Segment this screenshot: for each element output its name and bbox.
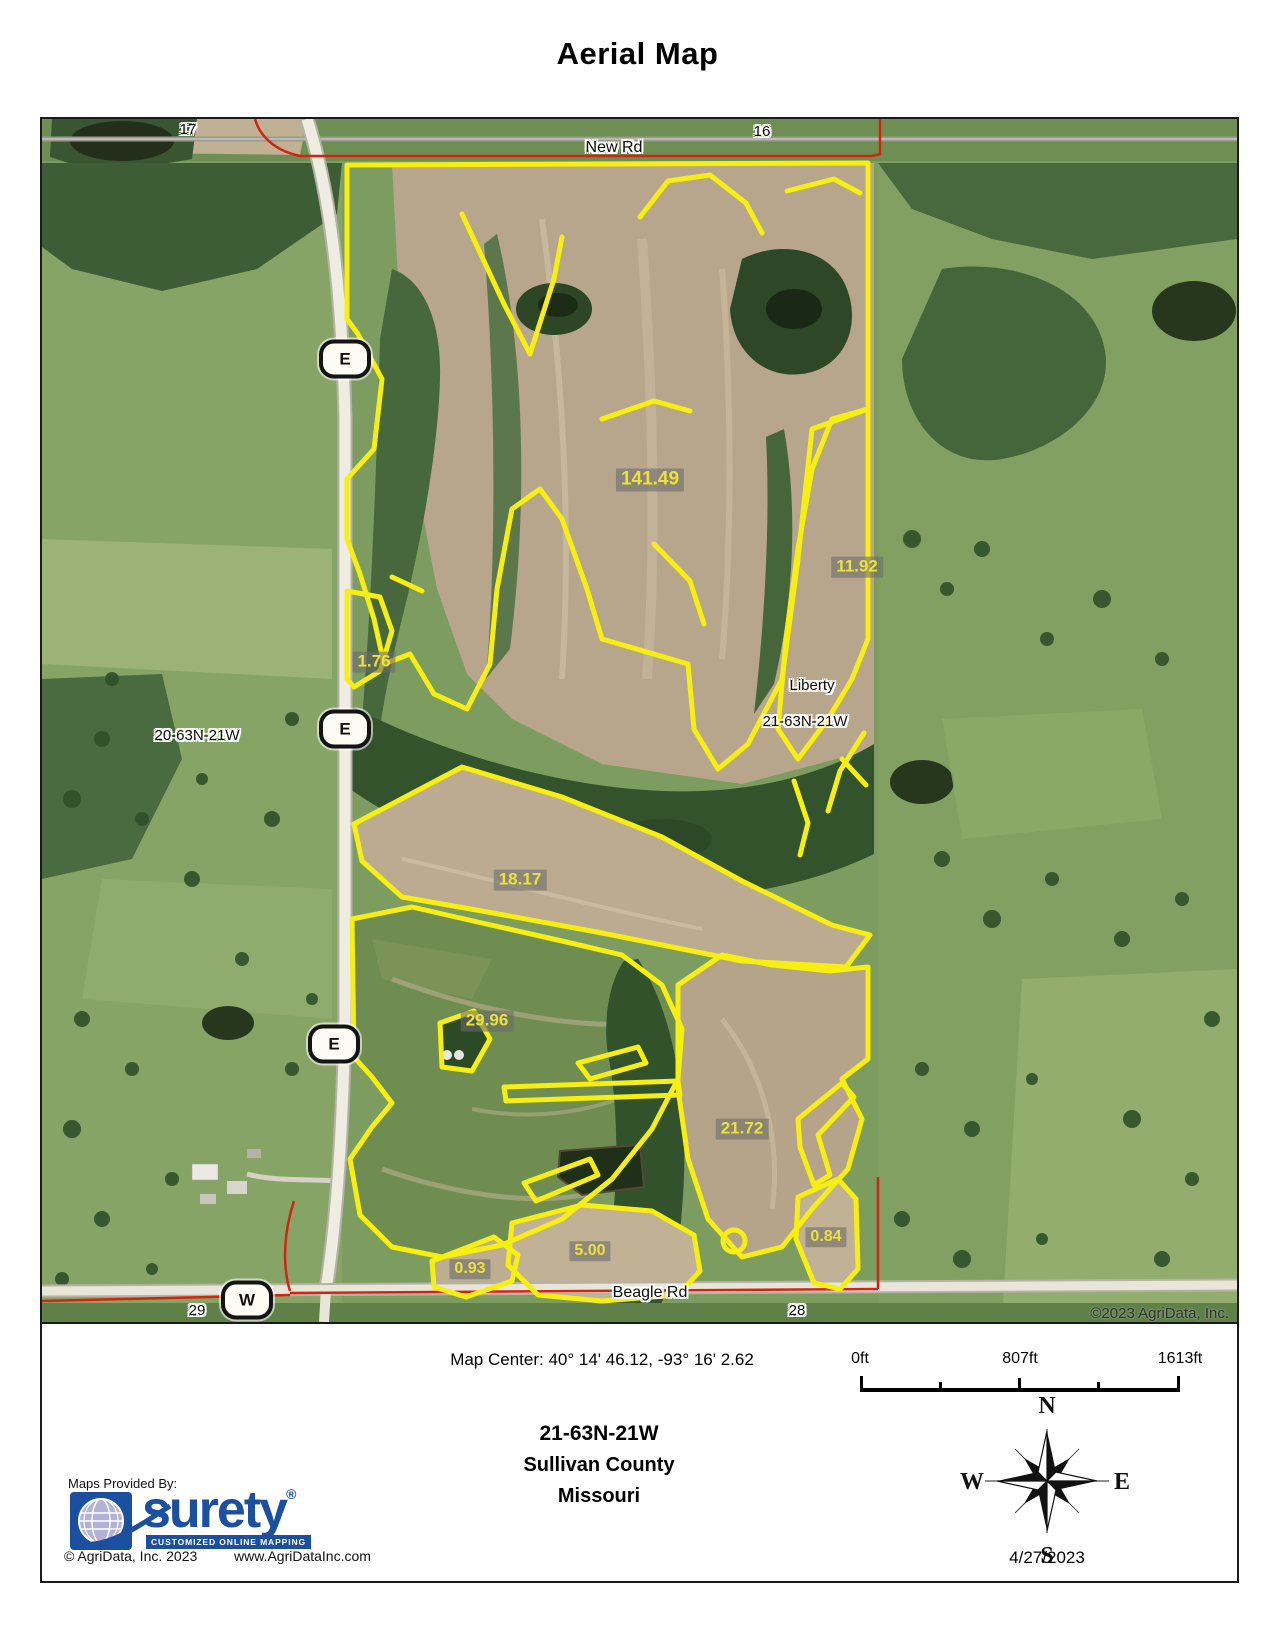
- acreage-label-5-00: 5.00: [569, 1241, 610, 1261]
- compass-rose: N S E W: [957, 1385, 1137, 1565]
- aerial-map: 17 16 New Rd 20-63N-21W Liberty 21-63N-2…: [42, 119, 1237, 1324]
- road-label-new-rd: New Rd: [586, 139, 643, 157]
- aerial-imagery: [42, 119, 1237, 1322]
- township-label-west: 20-63N-21W: [154, 728, 239, 745]
- map-footer: Map Center: 40° 14' 46.12, -93° 16' 2.62…: [42, 1324, 1237, 1581]
- township-label-liberty: Liberty: [789, 678, 834, 695]
- aerial-map-page: Aerial Map: [0, 0, 1275, 1650]
- acreage-label-141-49: 141.49: [616, 469, 684, 492]
- road-label-beagle-rd: Beagle Rd: [613, 1284, 688, 1302]
- map-center-coordinates: Map Center: 40° 14' 46.12, -93° 16' 2.62: [450, 1350, 754, 1370]
- surety-tagline: CUSTOMIZED ONLINE MAPPING: [146, 1535, 311, 1549]
- page-title: Aerial Map: [0, 36, 1275, 72]
- acreage-label-18-17: 18.17: [494, 870, 547, 891]
- location-state: Missouri: [558, 1485, 640, 1508]
- scale-label-zero: 0ft: [851, 1350, 869, 1368]
- route-marker-e-3: E: [308, 1025, 360, 1064]
- acreage-label-0-84: 0.84: [805, 1227, 846, 1247]
- section-number-28: 28: [789, 1303, 806, 1320]
- surety-logo: surety® CUSTOMIZED ONLINE MAPPING: [70, 1492, 400, 1552]
- compass-e-label: E: [1114, 1469, 1130, 1495]
- map-copyright: ©2023 AgriData, Inc.: [1090, 1305, 1229, 1322]
- township-label-current: 21-63N-21W: [762, 714, 847, 731]
- acreage-label-21-72: 21.72: [716, 1119, 769, 1140]
- route-marker-e-1: E: [319, 340, 371, 379]
- acreage-label-1-76: 1.76: [352, 652, 395, 673]
- section-number-17: 17: [180, 122, 197, 139]
- route-marker-w: W: [221, 1281, 273, 1320]
- map-date: 4/27/2023: [1009, 1548, 1085, 1568]
- acreage-label-0-93: 0.93: [449, 1259, 490, 1279]
- map-frame: 17 16 New Rd 20-63N-21W Liberty 21-63N-2…: [40, 117, 1239, 1583]
- surety-wordmark: surety®: [142, 1480, 296, 1540]
- provider-copyright: © AgriData, Inc. 2023: [64, 1548, 197, 1564]
- location-township: 21-63N-21W: [539, 1422, 658, 1446]
- registered-mark: ®: [286, 1486, 296, 1502]
- location-county: Sullivan County: [523, 1454, 674, 1477]
- provider-website-link[interactable]: www.AgriDataInc.com: [234, 1548, 371, 1564]
- route-marker-e-2: E: [319, 710, 371, 749]
- acreage-label-29-96: 29.96: [461, 1011, 514, 1032]
- section-number-16: 16: [754, 124, 771, 141]
- scale-label-mid: 807ft: [1002, 1350, 1038, 1368]
- scale-label-end: 1613ft: [1158, 1350, 1202, 1368]
- acreage-label-11-92: 11.92: [831, 557, 883, 578]
- compass-w-label: W: [960, 1469, 984, 1495]
- section-number-29: 29: [189, 1303, 206, 1320]
- compass-n-label: N: [1038, 1393, 1056, 1419]
